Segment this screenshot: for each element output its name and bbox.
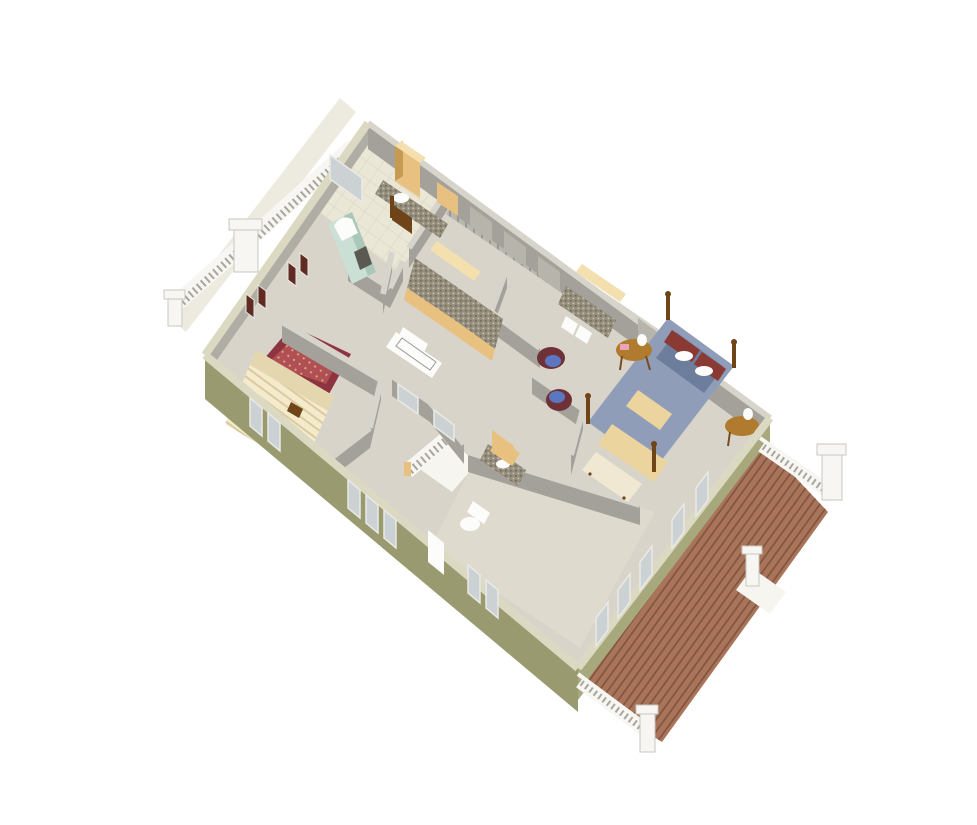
floorplan-canvas bbox=[0, 0, 977, 825]
chair-cushion bbox=[549, 391, 565, 403]
stair-newel bbox=[404, 462, 411, 476]
deck-post bbox=[746, 552, 759, 586]
chimney-cap-post bbox=[234, 226, 258, 272]
floorplan-render bbox=[0, 0, 977, 825]
lamp bbox=[637, 334, 647, 346]
book bbox=[620, 344, 629, 350]
deck-post-east bbox=[822, 452, 842, 500]
toilet-bowl bbox=[460, 517, 480, 531]
pillow bbox=[675, 351, 693, 361]
deck-post-south bbox=[640, 712, 655, 752]
lamp bbox=[743, 408, 753, 420]
pillow bbox=[695, 366, 713, 376]
sink bbox=[393, 193, 409, 203]
chair-back bbox=[390, 196, 394, 218]
chair-cushion bbox=[545, 355, 561, 367]
balcony-post bbox=[168, 296, 182, 326]
